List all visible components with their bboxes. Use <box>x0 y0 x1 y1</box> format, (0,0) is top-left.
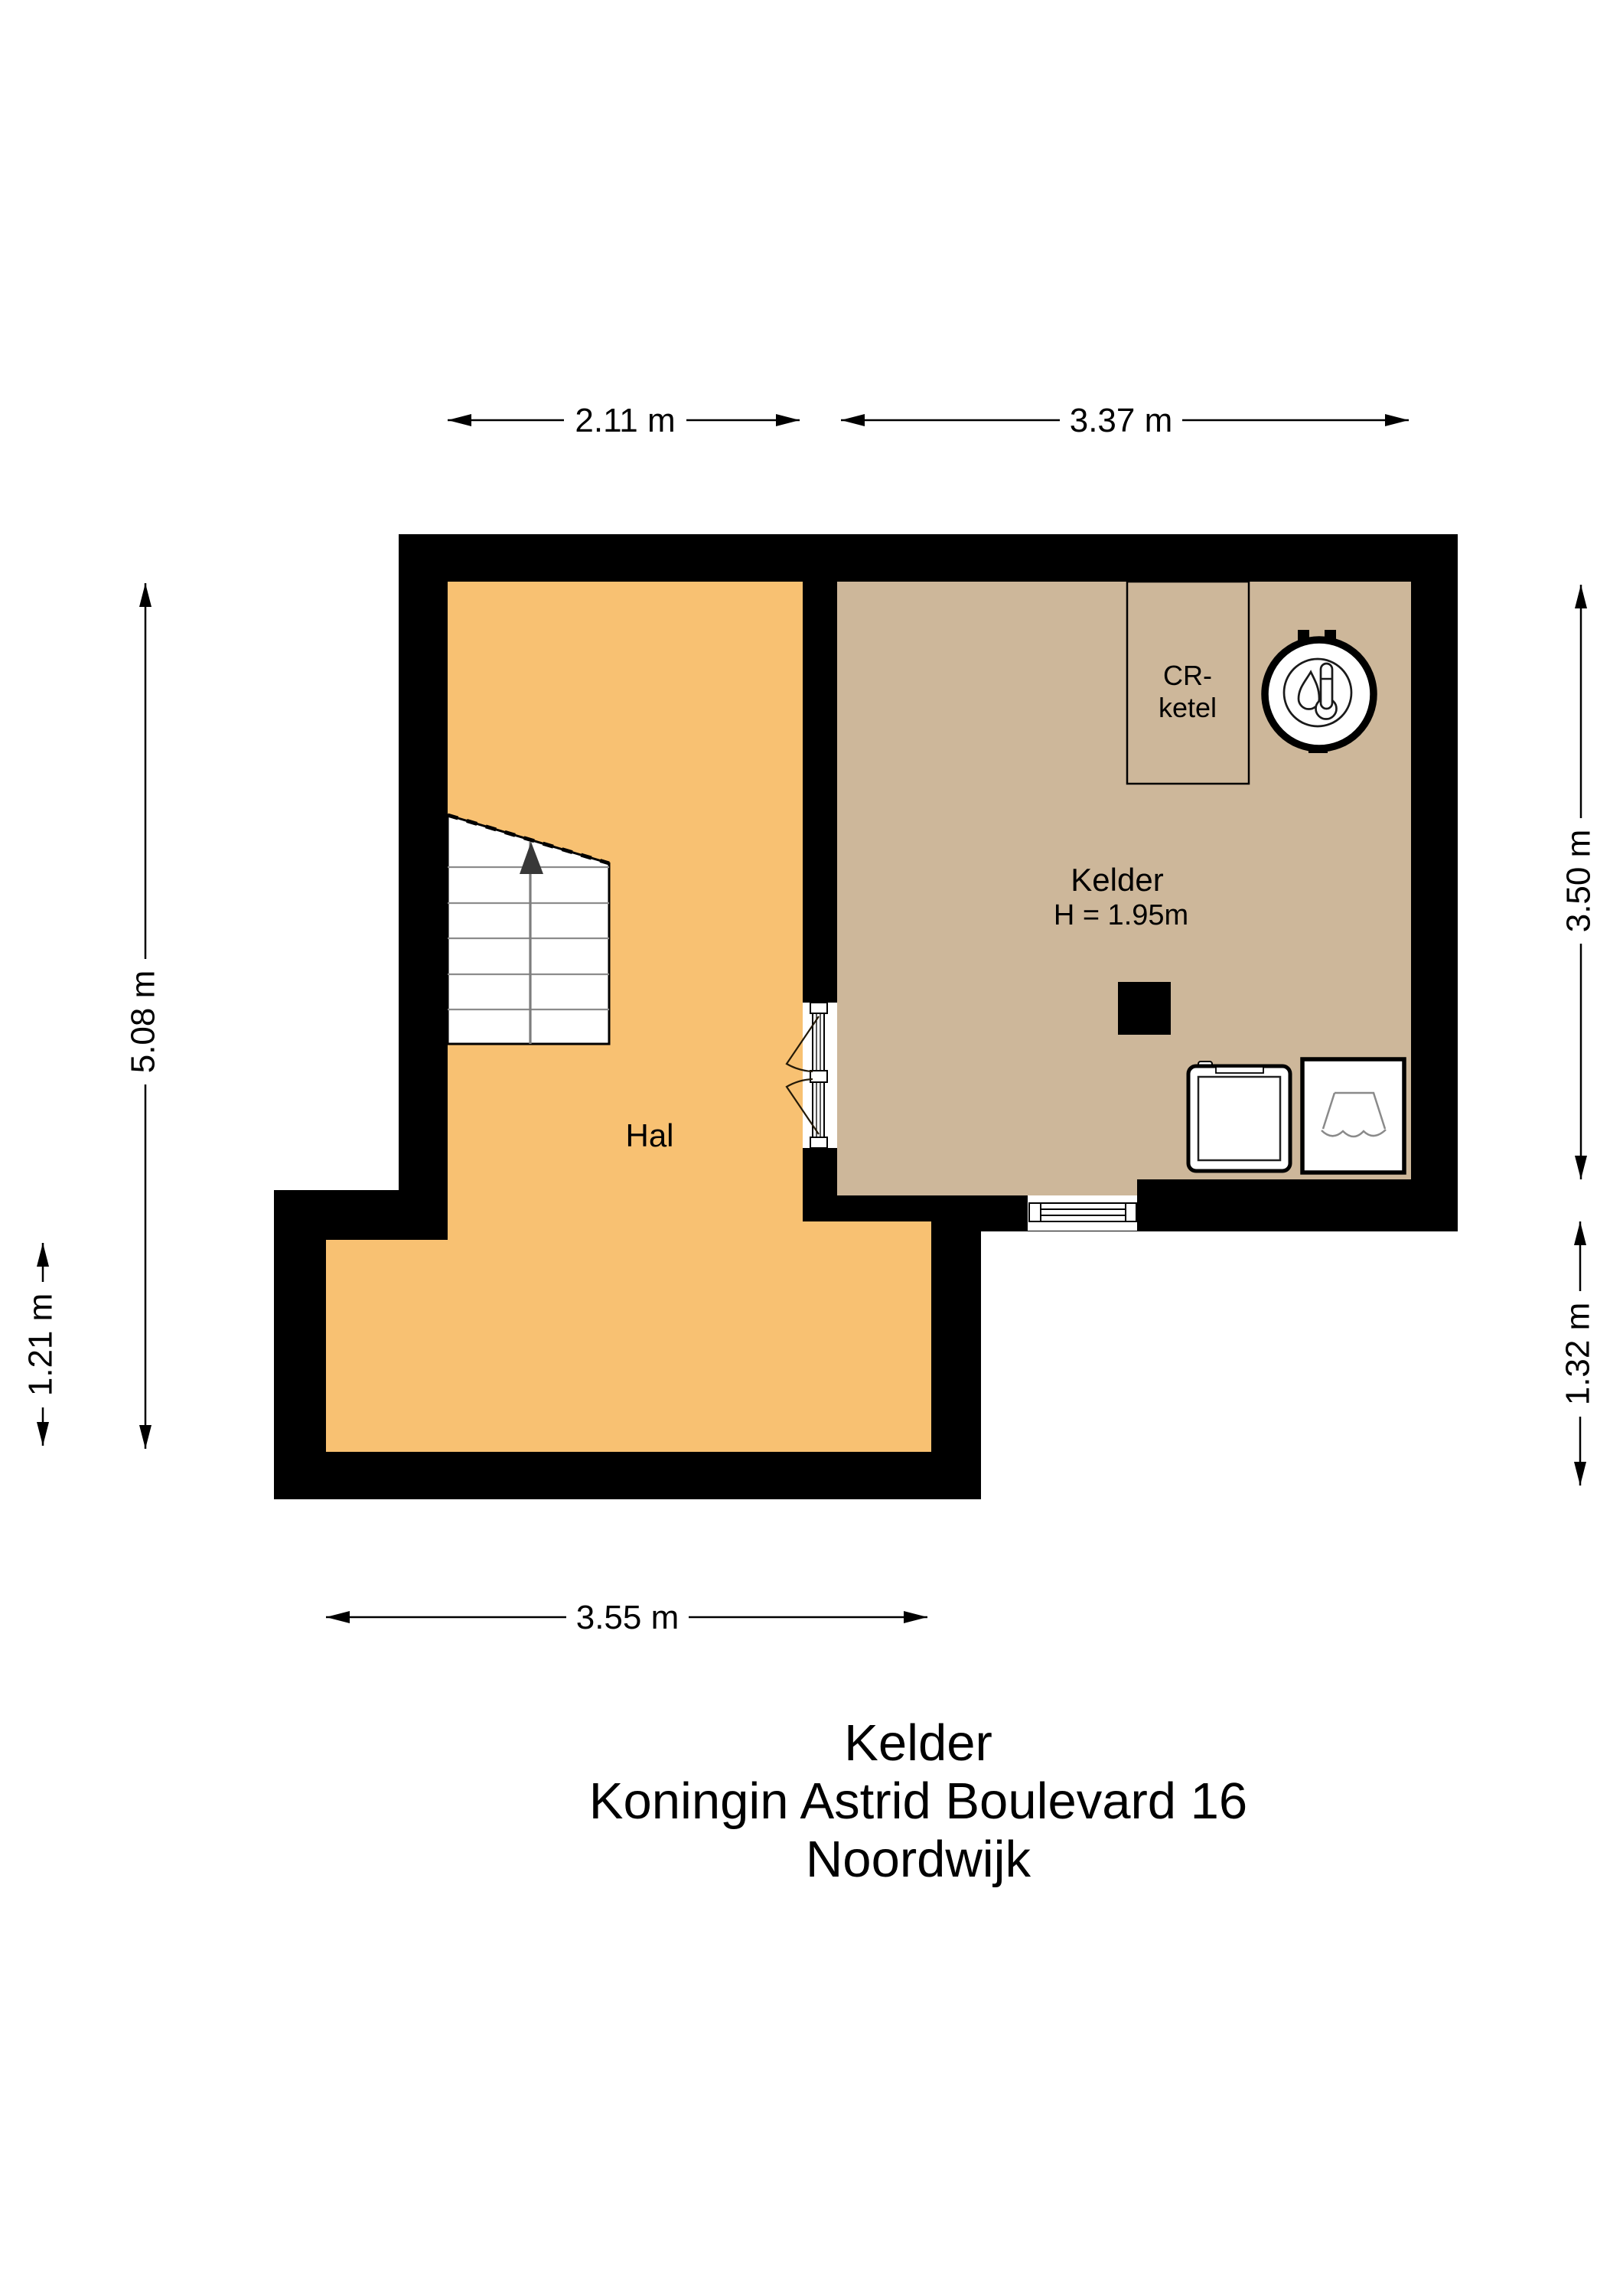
svg-text:1.21 m: 1.21 m <box>22 1293 60 1397</box>
svg-text:2.11 m: 2.11 m <box>575 402 675 439</box>
svg-text:CR-: CR- <box>1163 660 1212 691</box>
svg-text:H = 1.95m: H = 1.95m <box>1054 899 1188 931</box>
svg-text:Koningin Astrid Boulevard 16: Koningin Astrid Boulevard 16 <box>589 1773 1247 1830</box>
svg-text:1.32 m: 1.32 m <box>1559 1303 1597 1406</box>
svg-text:Kelder: Kelder <box>844 1714 992 1772</box>
svg-text:3.37 m: 3.37 m <box>1070 402 1173 439</box>
svg-text:Hal: Hal <box>625 1117 673 1153</box>
svg-text:5.08 m: 5.08 m <box>125 970 162 1074</box>
svg-text:Kelder: Kelder <box>1071 862 1163 898</box>
svg-text:ketel: ketel <box>1159 692 1217 723</box>
svg-text:3.55 m: 3.55 m <box>576 1599 680 1636</box>
svg-text:3.50 m: 3.50 m <box>1560 830 1598 933</box>
svg-text:Noordwijk: Noordwijk <box>806 1831 1031 1888</box>
